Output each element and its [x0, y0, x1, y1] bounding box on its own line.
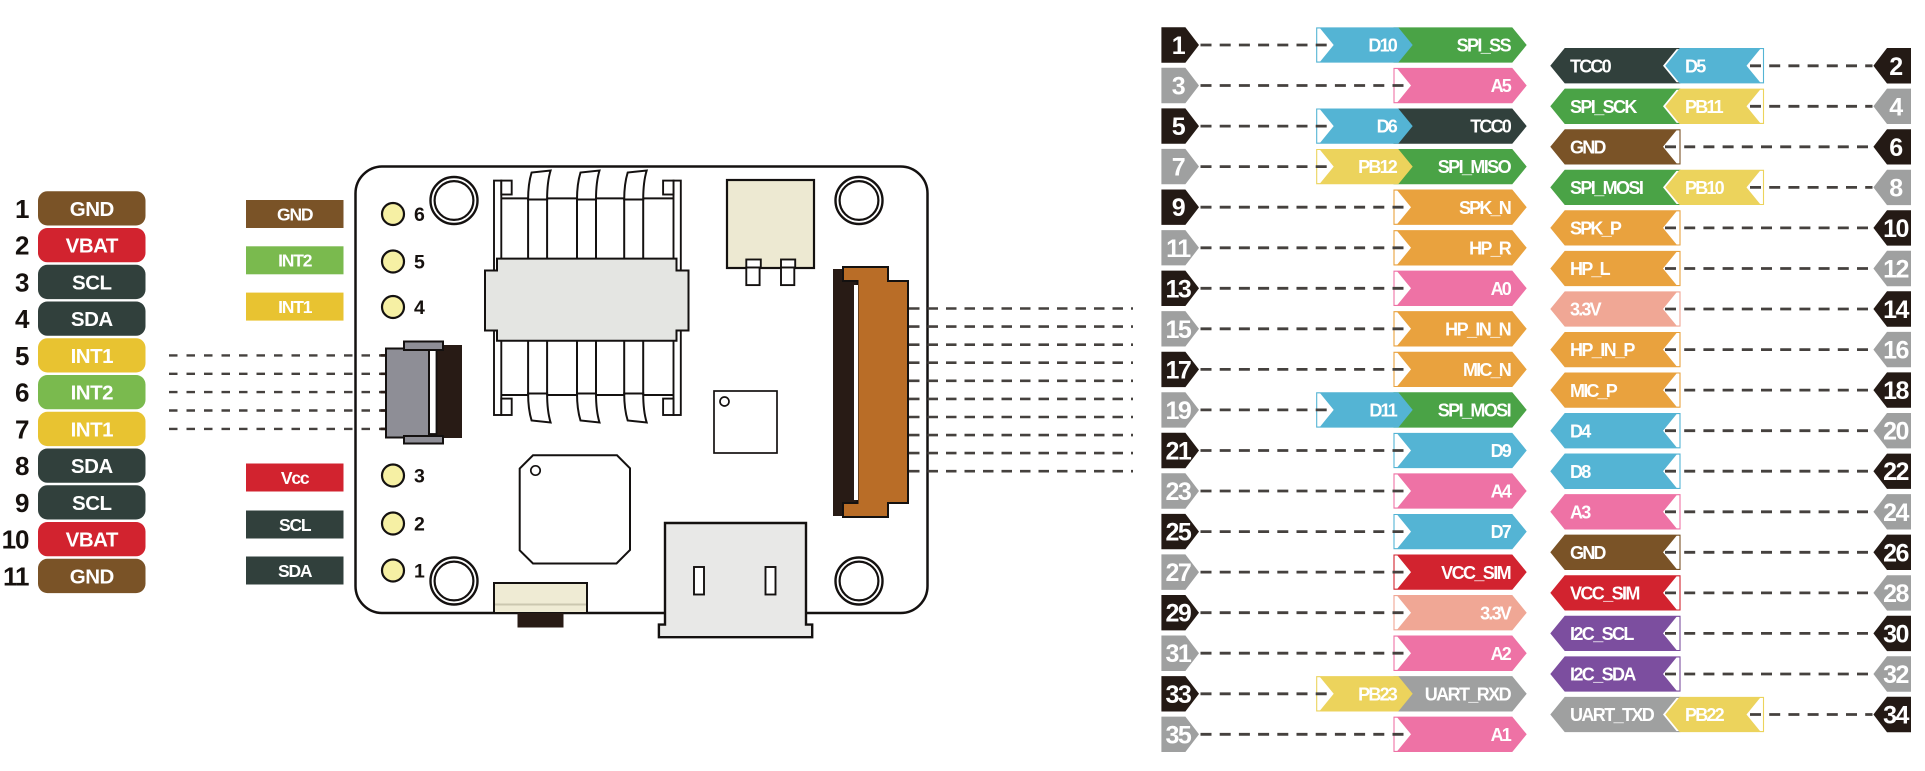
svg-text:7: 7 — [15, 414, 29, 444]
svg-text:SPI_SCK: SPI_SCK — [1570, 97, 1637, 117]
svg-text:SCL: SCL — [72, 492, 112, 515]
svg-text:D10: D10 — [1368, 36, 1397, 56]
svg-text:GND: GND — [277, 204, 313, 224]
svg-text:A5: A5 — [1491, 76, 1512, 96]
svg-text:SPI_MOSI: SPI_MOSI — [1438, 401, 1511, 421]
svg-text:GND: GND — [1570, 543, 1606, 563]
svg-text:5: 5 — [414, 252, 425, 274]
svg-text:UART_TXD: UART_TXD — [1570, 705, 1655, 725]
svg-text:12: 12 — [1883, 256, 1908, 284]
svg-text:SCL: SCL — [72, 271, 112, 294]
svg-text:30: 30 — [1883, 620, 1908, 648]
svg-text:VBAT: VBAT — [66, 235, 119, 258]
svg-text:24: 24 — [1883, 499, 1909, 527]
svg-text:VCC_SIM: VCC_SIM — [1570, 584, 1639, 604]
svg-text:3.3V: 3.3V — [1480, 603, 1512, 623]
svg-text:33: 33 — [1165, 681, 1190, 709]
svg-text:SPI_MISO: SPI_MISO — [1438, 157, 1512, 177]
svg-text:TCC0: TCC0 — [1470, 117, 1512, 137]
svg-text:31: 31 — [1165, 640, 1191, 668]
svg-text:19: 19 — [1165, 397, 1190, 425]
svg-text:34: 34 — [1883, 702, 1909, 730]
svg-text:PB10: PB10 — [1685, 178, 1725, 198]
svg-text:4: 4 — [414, 297, 425, 319]
svg-text:14: 14 — [1883, 296, 1909, 324]
svg-text:20: 20 — [1883, 418, 1908, 446]
svg-text:D8: D8 — [1570, 462, 1591, 482]
svg-text:28: 28 — [1883, 580, 1909, 608]
svg-text:17: 17 — [1165, 356, 1190, 384]
svg-text:MIC_P: MIC_P — [1570, 381, 1618, 401]
svg-text:D5: D5 — [1685, 56, 1706, 76]
svg-text:VBAT: VBAT — [66, 529, 119, 552]
svg-text:5: 5 — [1172, 113, 1186, 141]
svg-text:23: 23 — [1165, 478, 1190, 506]
svg-text:D11: D11 — [1369, 401, 1397, 421]
svg-text:SPI_MOSI: SPI_MOSI — [1570, 178, 1643, 198]
svg-text:A1: A1 — [1491, 725, 1512, 745]
svg-text:GND: GND — [70, 565, 114, 588]
svg-text:1: 1 — [15, 194, 29, 224]
svg-text:8: 8 — [1889, 174, 1903, 202]
svg-text:PB22: PB22 — [1685, 705, 1725, 725]
svg-text:VCC_SIM: VCC_SIM — [1441, 563, 1510, 583]
svg-text:15: 15 — [1165, 316, 1191, 344]
svg-text:6: 6 — [1889, 134, 1902, 162]
svg-text:A3: A3 — [1570, 502, 1591, 522]
svg-text:GND: GND — [1570, 137, 1606, 157]
svg-text:6: 6 — [15, 378, 29, 408]
svg-text:SDA: SDA — [71, 308, 113, 331]
svg-text:MIC_N: MIC_N — [1463, 360, 1511, 380]
svg-text:2: 2 — [414, 514, 425, 536]
svg-text:HP_R: HP_R — [1469, 238, 1512, 258]
svg-text:INT2: INT2 — [278, 251, 313, 271]
svg-text:SDA: SDA — [278, 561, 313, 581]
svg-text:SDA: SDA — [71, 455, 113, 478]
svg-text:21: 21 — [1165, 438, 1191, 466]
svg-text:8: 8 — [15, 451, 29, 481]
svg-text:22: 22 — [1883, 458, 1908, 486]
svg-text:D7: D7 — [1491, 522, 1512, 542]
svg-text:9: 9 — [1172, 194, 1185, 222]
svg-text:HP_IN_N: HP_IN_N — [1445, 319, 1510, 339]
svg-text:18: 18 — [1883, 377, 1909, 405]
svg-text:PB23: PB23 — [1358, 684, 1398, 704]
svg-text:I2C_SDA: I2C_SDA — [1570, 665, 1636, 685]
svg-text:D4: D4 — [1570, 421, 1591, 441]
svg-text:HP_IN_P: HP_IN_P — [1570, 340, 1635, 360]
svg-text:25: 25 — [1165, 519, 1191, 547]
svg-text:PB12: PB12 — [1358, 157, 1398, 177]
svg-text:A4: A4 — [1491, 482, 1512, 502]
svg-text:32: 32 — [1883, 661, 1908, 689]
svg-text:13: 13 — [1165, 275, 1190, 303]
svg-text:Vcc: Vcc — [281, 468, 310, 488]
svg-text:9: 9 — [15, 488, 29, 518]
svg-text:3: 3 — [15, 267, 29, 297]
svg-text:4: 4 — [15, 304, 30, 334]
svg-text:1: 1 — [1172, 32, 1186, 60]
svg-text:27: 27 — [1165, 559, 1190, 587]
svg-text:SPI_SS: SPI_SS — [1457, 36, 1512, 56]
svg-text:6: 6 — [414, 204, 425, 226]
svg-text:10: 10 — [2, 525, 29, 555]
svg-text:10: 10 — [1883, 215, 1908, 243]
svg-text:INT2: INT2 — [71, 382, 114, 405]
svg-text:SPK_P: SPK_P — [1570, 219, 1622, 239]
svg-text:A0: A0 — [1491, 279, 1512, 299]
svg-text:HP_L: HP_L — [1570, 259, 1611, 279]
svg-text:INT1: INT1 — [71, 418, 114, 441]
svg-text:7: 7 — [1172, 154, 1185, 182]
svg-text:D9: D9 — [1491, 441, 1512, 461]
svg-text:4: 4 — [1889, 93, 1903, 121]
svg-text:3: 3 — [1172, 73, 1185, 101]
svg-text:26: 26 — [1883, 539, 1908, 567]
svg-text:3.3V: 3.3V — [1570, 300, 1602, 320]
svg-text:D6: D6 — [1377, 117, 1398, 137]
svg-text:5: 5 — [15, 341, 29, 371]
svg-text:UART_RXD: UART_RXD — [1425, 684, 1512, 704]
svg-text:SPK_N: SPK_N — [1459, 198, 1511, 218]
svg-text:2: 2 — [15, 231, 29, 261]
svg-text:A2: A2 — [1491, 644, 1512, 664]
svg-text:PB11: PB11 — [1685, 97, 1724, 117]
svg-text:29: 29 — [1165, 600, 1190, 628]
svg-text:3: 3 — [414, 466, 425, 488]
svg-text:GND: GND — [70, 198, 114, 221]
svg-text:INT1: INT1 — [278, 297, 313, 317]
svg-text:SCL: SCL — [279, 515, 312, 535]
svg-text:11: 11 — [3, 561, 29, 591]
svg-text:INT1: INT1 — [71, 345, 114, 368]
svg-text:TCC0: TCC0 — [1570, 56, 1612, 76]
svg-text:2: 2 — [1889, 53, 1902, 81]
svg-text:I2C_SCL: I2C_SCL — [1570, 624, 1634, 644]
svg-text:35: 35 — [1165, 721, 1191, 749]
svg-text:16: 16 — [1883, 337, 1908, 365]
svg-text:1: 1 — [414, 561, 425, 583]
svg-text:11: 11 — [1166, 235, 1191, 263]
